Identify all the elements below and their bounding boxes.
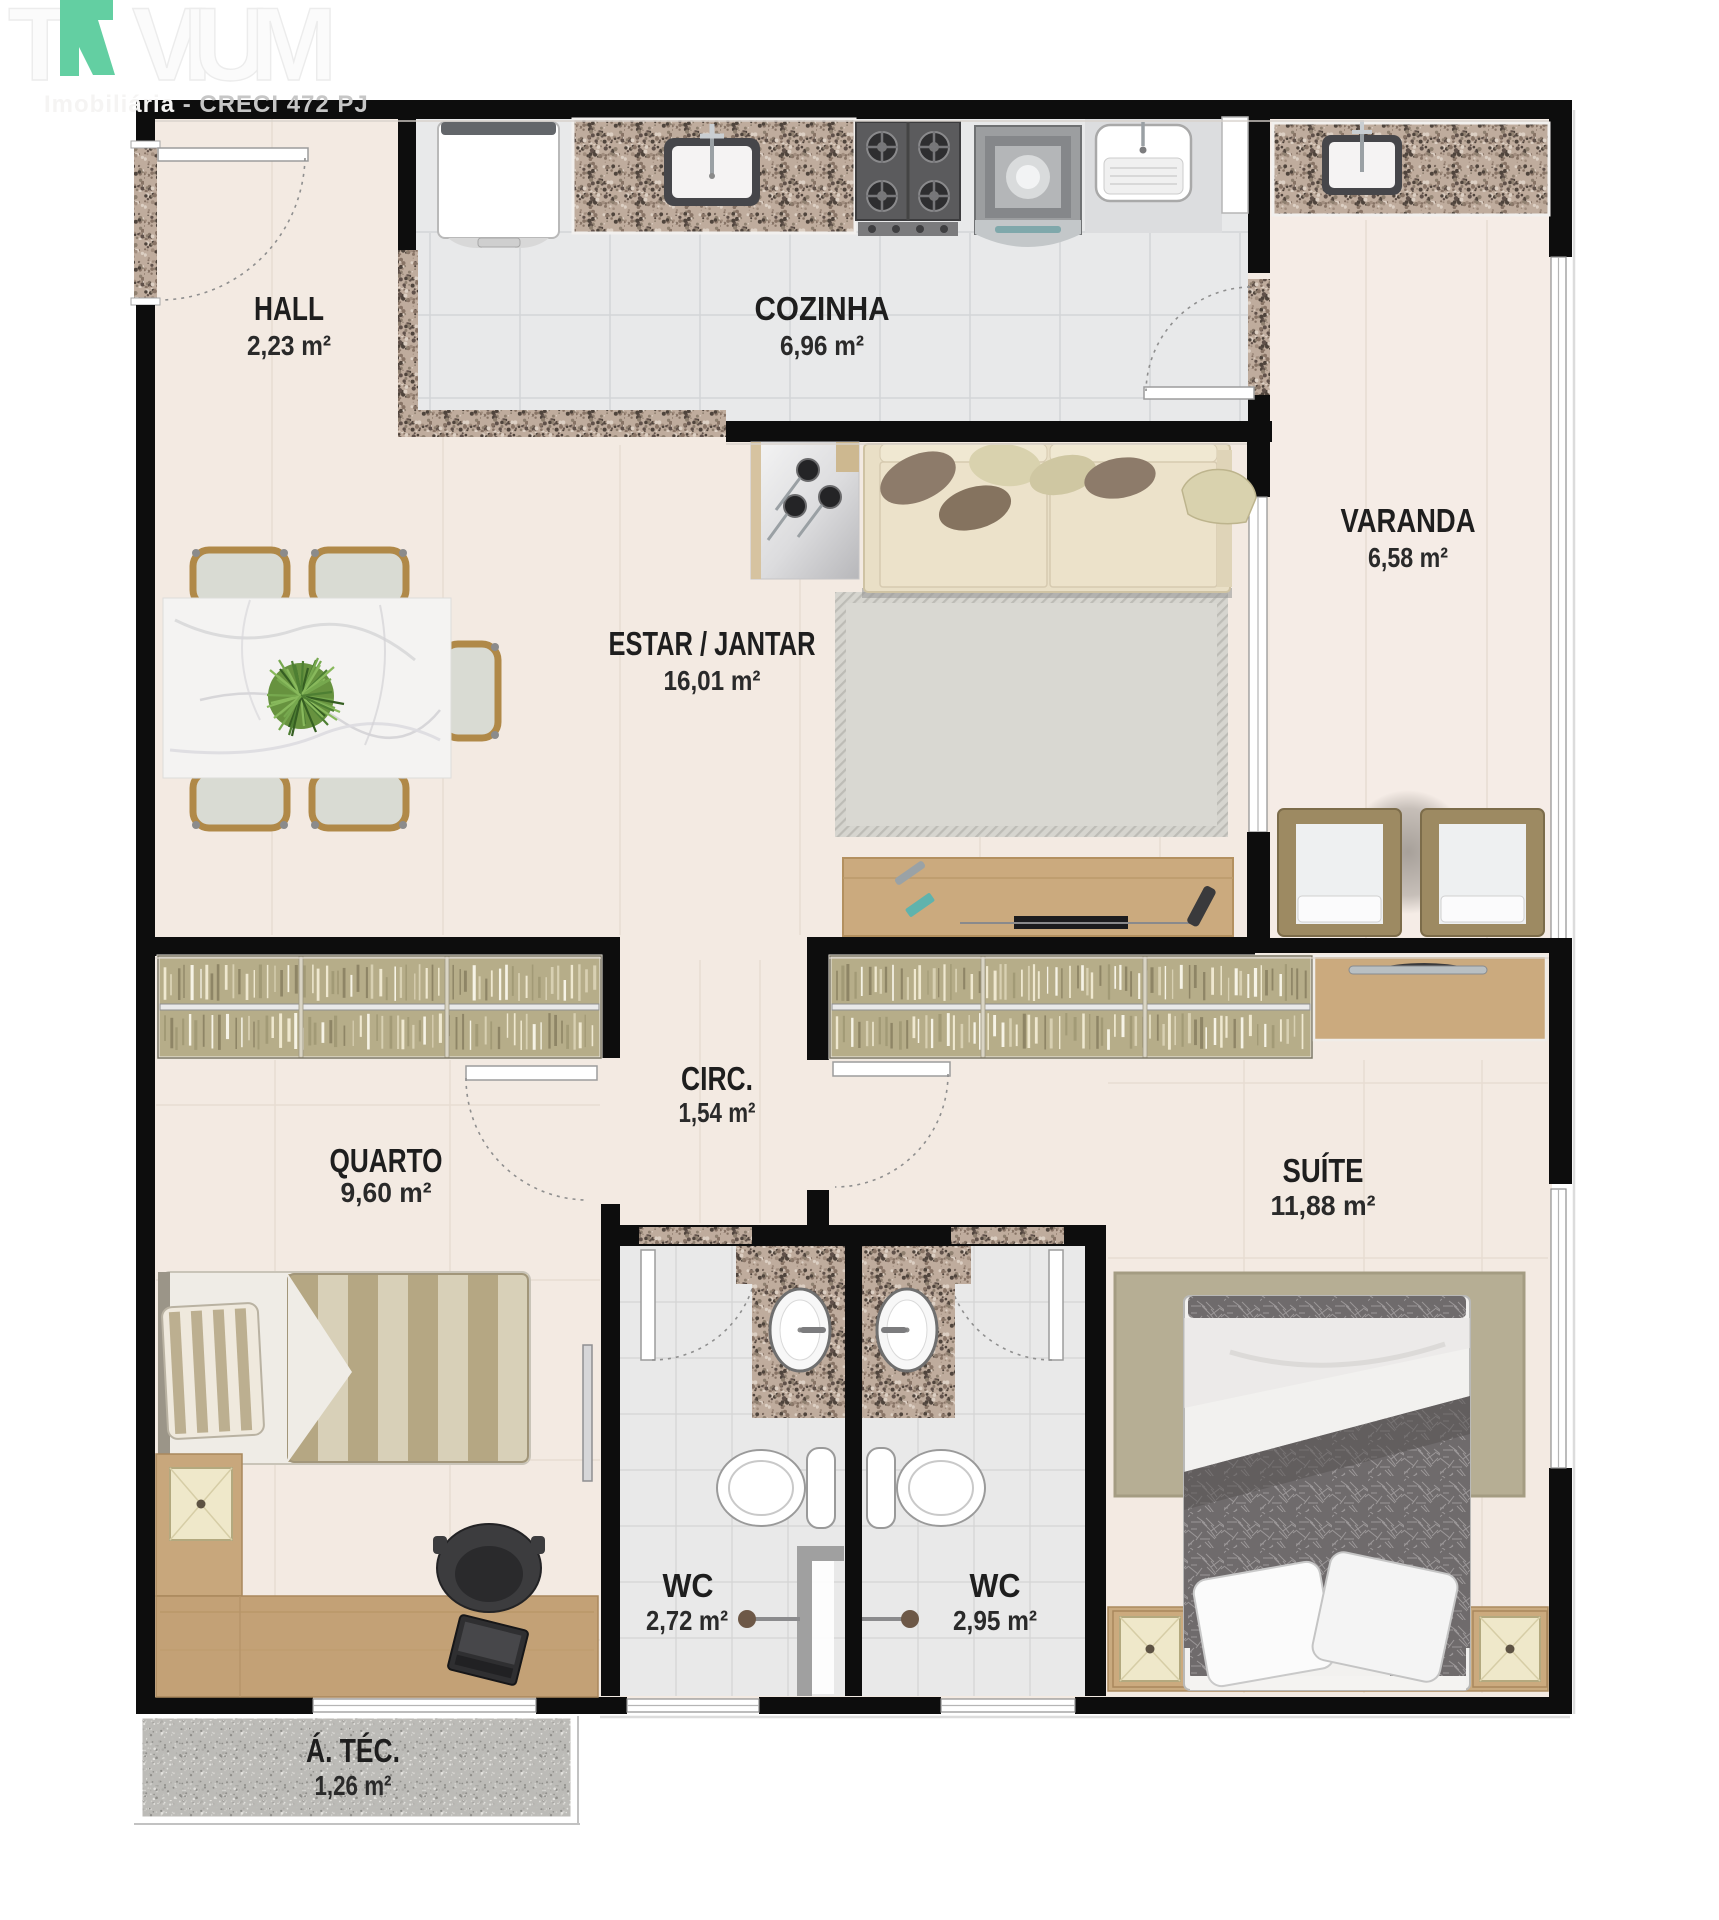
svg-text:6,96 m²: 6,96 m² — [780, 330, 864, 361]
svg-text:2,23 m²: 2,23 m² — [247, 330, 331, 361]
svg-text:6,58 m²: 6,58 m² — [1368, 542, 1448, 573]
svg-text:WC: WC — [970, 1567, 1021, 1604]
svg-text:WC: WC — [663, 1567, 714, 1604]
svg-text:11,88 m²: 11,88 m² — [1271, 1190, 1376, 1221]
svg-text:Á. TÉC.: Á. TÉC. — [306, 1732, 400, 1769]
svg-text:COZINHA: COZINHA — [755, 290, 890, 327]
svg-text:Imobiliária - CRECI 472 PJ: Imobiliária - CRECI 472 PJ — [44, 91, 369, 118]
svg-text:1,54 m²: 1,54 m² — [679, 1097, 756, 1128]
svg-text:QUARTO: QUARTO — [330, 1142, 443, 1179]
svg-text:2,72 m²: 2,72 m² — [646, 1605, 728, 1636]
svg-text:VIUM: VIUM — [132, 0, 337, 103]
svg-text:VARANDA: VARANDA — [1341, 502, 1476, 539]
svg-text:1,26 m²: 1,26 m² — [315, 1770, 392, 1801]
svg-text:HALL: HALL — [254, 290, 324, 327]
svg-text:SUÍTE: SUÍTE — [1283, 1152, 1364, 1189]
svg-text:9,60 m²: 9,60 m² — [341, 1177, 432, 1208]
svg-text:2,95 m²: 2,95 m² — [953, 1605, 1037, 1636]
svg-text:ESTAR / JANTAR: ESTAR / JANTAR — [609, 625, 816, 662]
svg-text:16,01 m²: 16,01 m² — [664, 665, 761, 696]
svg-text:CIRC.: CIRC. — [681, 1060, 753, 1097]
